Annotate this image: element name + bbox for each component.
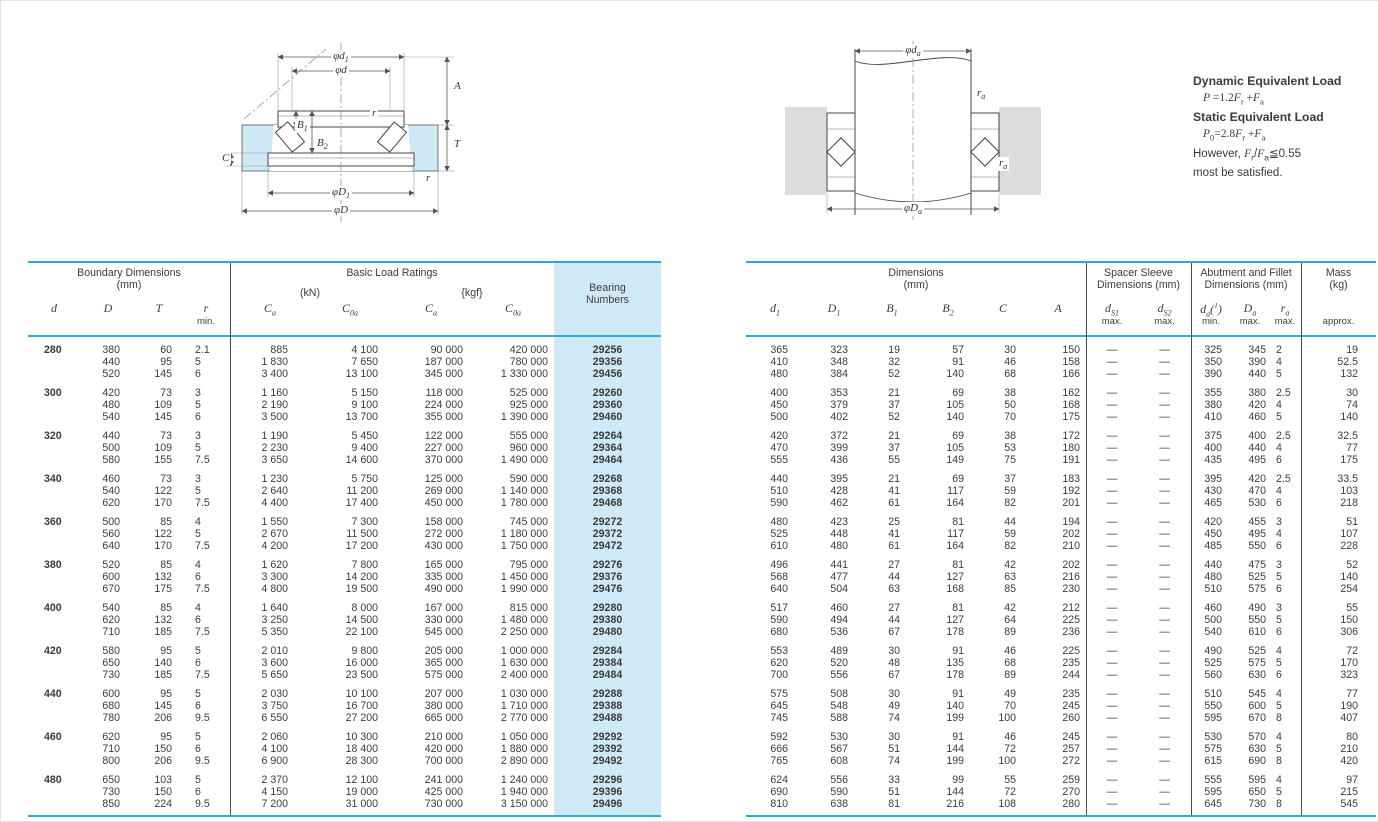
cell-D: 580 — [80, 638, 136, 657]
cell-Ca-kN: 4 150 — [230, 786, 310, 798]
cell-ra-max: 8 — [1269, 712, 1301, 724]
cell-bearing-number: 29388 — [554, 700, 661, 712]
cell-D: 620 — [80, 497, 136, 509]
cell-C0a-kN: 18 400 — [310, 743, 390, 755]
cell-C0a-kN: 12 100 — [310, 767, 390, 786]
cell-Da-max: 460 — [1231, 411, 1269, 423]
cell-r-min: 5 — [182, 442, 230, 454]
cell-Da-max: 550 — [1231, 540, 1269, 552]
cell-C: 46 — [976, 356, 1030, 368]
cell-D1: 348 — [804, 356, 864, 368]
cell-C0a-kN: 11 200 — [310, 485, 390, 497]
cell-Da-max: 495 — [1231, 528, 1269, 540]
cell-ra-max: 5 — [1269, 743, 1301, 755]
cell-D1: 423 — [804, 509, 864, 528]
cell-ds1: — — [1086, 681, 1138, 700]
table-row: 8502249.57 20031 000730 0003 150 0002949… — [28, 798, 661, 810]
cell-D: 640 — [80, 540, 136, 552]
cell-mass: 74 — [1301, 399, 1376, 411]
table-row: 440395216937183——3954202.533.5 — [746, 466, 1376, 485]
cell-Ca-kN: 1 230 — [230, 466, 310, 485]
cell-ds1: — — [1086, 626, 1138, 638]
cell-B1: 52 — [864, 368, 920, 380]
cell-d — [28, 657, 80, 669]
cell-C0a-kN: 16 000 — [310, 657, 390, 669]
cell-bearing-number: 29376 — [554, 571, 661, 583]
cell-C: 64 — [976, 614, 1030, 626]
cell-Ca-kN: 1 830 — [230, 356, 310, 368]
cell-B2: 127 — [920, 571, 976, 583]
cell-Ca-kN: 1 640 — [230, 595, 310, 614]
col-symbol-ds2: dS2 — [1138, 301, 1191, 317]
cell-C0a-kN: 13 700 — [310, 411, 390, 423]
cell-mass: 190 — [1301, 700, 1376, 712]
col-symbol-D: D — [80, 301, 136, 316]
cell-ra-max: 2.5 — [1269, 380, 1301, 399]
cell-Ca-kN: 4 800 — [230, 583, 310, 595]
cell-ra-max: 4 — [1269, 724, 1301, 743]
cell-D: 710 — [80, 626, 136, 638]
cell-Ca-kN: 1 160 — [230, 380, 310, 399]
cell-Da-max: 630 — [1231, 743, 1269, 755]
cell-T: 145 — [136, 411, 182, 423]
table-row: 575508309149235——510545477 — [746, 681, 1376, 700]
cell-D: 580 — [80, 454, 136, 466]
table-row: 496441278142202——440475352 — [746, 552, 1376, 571]
cell-T: 122 — [136, 485, 182, 497]
table-row: 4205809552 0109 800205 0001 000 00029284 — [28, 638, 661, 657]
cell-da-min: 510 — [1191, 583, 1231, 595]
boundary-dimensions-heading: Boundary Dimensions (mm) — [28, 268, 230, 291]
cell-Ca-kN: 3 500 — [230, 411, 310, 423]
cell-D1: 462 — [804, 497, 864, 509]
cell-bearing-number: 29380 — [554, 614, 661, 626]
cell-C0a-kN: 28 300 — [310, 755, 390, 767]
table-row: 6104806116482210——4855506228 — [746, 540, 1376, 552]
cell-C0a-kgf: 780 000 — [472, 356, 554, 368]
cell-Da-max: 470 — [1231, 485, 1269, 497]
cell-Ca-kgf: 207 000 — [390, 681, 472, 700]
table-row: 6905905114472270——5956505215 — [746, 786, 1376, 798]
cell-Ca-kgf: 118 000 — [390, 380, 472, 399]
cell-Ca-kgf: 227 000 — [390, 442, 472, 454]
table-row: 3204407331 1905 450122 000555 00029264 — [28, 423, 661, 442]
cell-B2: 57 — [920, 337, 976, 356]
cell-C0a-kN: 17 400 — [310, 497, 390, 509]
cell-A: 245 — [1030, 724, 1086, 743]
cell-bearing-number: 29468 — [554, 497, 661, 509]
table-row: 5104284111759192——4304704103 — [746, 485, 1376, 497]
cell-ds2: — — [1138, 755, 1191, 767]
cell-Da-max: 670 — [1231, 712, 1269, 724]
cell-r-min: 4 — [182, 509, 230, 528]
cell-B1: 63 — [864, 583, 920, 595]
cell-C0a-kgf: 815 000 — [472, 595, 554, 614]
cell-B2: 164 — [920, 540, 976, 552]
cell-d1: 765 — [746, 755, 804, 767]
cell-C0a-kgf: 1 180 000 — [472, 528, 554, 540]
mounted-bearing-diagram — [783, 37, 1043, 227]
boundary-dimensions-unit: (mm) — [117, 279, 142, 291]
cell-ds1: — — [1086, 669, 1138, 681]
cell-da-min: 575 — [1191, 743, 1231, 755]
cell-D1: 399 — [804, 442, 864, 454]
column-divider — [1301, 263, 1302, 815]
cell-B1: 27 — [864, 595, 920, 614]
cell-bearing-number: 29384 — [554, 657, 661, 669]
cell-d — [28, 528, 80, 540]
cell-ds1: — — [1086, 755, 1138, 767]
cell-A: 259 — [1030, 767, 1086, 786]
cell-C0a-kN: 11 500 — [310, 528, 390, 540]
dim-label-D1: φD1 — [330, 186, 352, 200]
dimensions-table: Dimensions (mm) Spacer Sleeve Dimensions… — [746, 261, 1376, 817]
cell-C0a-kN: 4 100 — [310, 337, 390, 356]
cell-B1: 21 — [864, 466, 920, 485]
load-note-line1: However, Fr/Fa≦0.55 — [1193, 146, 1378, 166]
cell-D: 680 — [80, 700, 136, 712]
table-row: 6405046316885230——5105756254 — [746, 583, 1376, 595]
col-symbol-ra: ra — [1269, 301, 1301, 317]
cell-r-min: 5 — [182, 399, 230, 411]
cell-C0a-kgf: 2 400 000 — [472, 669, 554, 681]
cell-ra-max: 4 — [1269, 442, 1301, 454]
cell-mass: 107 — [1301, 528, 1376, 540]
cell-r-min: 7.5 — [182, 626, 230, 638]
cell-bearing-number: 29460 — [554, 411, 661, 423]
cell-T: 145 — [136, 368, 182, 380]
cell-Da-max: 420 — [1231, 399, 1269, 411]
col-symbol-d: d — [28, 301, 80, 316]
cell-B1: 30 — [864, 681, 920, 700]
cell-Da-max: 730 — [1231, 798, 1269, 810]
cell-B1: 74 — [864, 755, 920, 767]
cell-A: 280 — [1030, 798, 1086, 810]
cell-ds2: — — [1138, 337, 1191, 356]
table-row: 4803845214068166——3904405132 — [746, 368, 1376, 380]
cell-C0a-kN: 22 100 — [310, 626, 390, 638]
cell-mass: 52 — [1301, 552, 1376, 571]
cell-B2: 81 — [920, 595, 976, 614]
cell-d — [28, 626, 80, 638]
cell-B1: 41 — [864, 485, 920, 497]
cell-da-min: 490 — [1191, 638, 1231, 657]
cell-r-min: 5 — [182, 528, 230, 540]
cell-B2: 91 — [920, 638, 976, 657]
col-symbol-ds1: dS1 — [1086, 301, 1138, 317]
cell-da-min: 420 — [1191, 509, 1231, 528]
cell-ra-max: 2.5 — [1269, 466, 1301, 485]
cell-d — [28, 614, 80, 626]
cell-ds2: — — [1138, 571, 1191, 583]
cell-A: 150 — [1030, 337, 1086, 356]
col-symbol-B1: B1 — [864, 301, 920, 317]
cell-d: 360 — [28, 509, 80, 528]
unit-kn-label: (kN) — [230, 288, 390, 300]
table-row: 50010952 2309 400227 000960 00029364 — [28, 442, 661, 454]
dim-label-r-top: r — [370, 107, 378, 119]
cell-A: 235 — [1030, 681, 1086, 700]
cell-ra-max: 3 — [1269, 552, 1301, 571]
cell-C: 42 — [976, 552, 1030, 571]
cell-d — [28, 583, 80, 595]
cell-bearing-number: 29364 — [554, 442, 661, 454]
cell-r-min: 7.5 — [182, 454, 230, 466]
cell-ra-max: 5 — [1269, 571, 1301, 583]
cell-B1: 33 — [864, 767, 920, 786]
cell-C0a-kgf: 590 000 — [472, 466, 554, 485]
cell-B2: 144 — [920, 786, 976, 798]
cell-bearing-number: 29296 — [554, 767, 661, 786]
cell-T: 170 — [136, 497, 182, 509]
cell-bearing-number: 29360 — [554, 399, 661, 411]
cell-D: 620 — [80, 614, 136, 626]
table-row: 7005566717889244——5606306323 — [746, 669, 1376, 681]
cell-da-min: 615 — [1191, 755, 1231, 767]
cell-mass: 228 — [1301, 540, 1376, 552]
cell-ra-max: 6 — [1269, 669, 1301, 681]
cell-Da-max: 380 — [1231, 380, 1269, 399]
cell-ds1: — — [1086, 724, 1138, 743]
cell-Ca-kN: 3 400 — [230, 368, 310, 380]
cell-r-min: 5 — [182, 638, 230, 657]
cell-A: 172 — [1030, 423, 1086, 442]
cell-bearing-number: 29472 — [554, 540, 661, 552]
cell-A: 210 — [1030, 540, 1086, 552]
cell-C0a-kgf: 1 390 000 — [472, 411, 554, 423]
cell-d1: 624 — [746, 767, 804, 786]
dimensions-unit: (mm) — [904, 279, 929, 291]
cell-Da-max: 600 — [1231, 700, 1269, 712]
cell-C0a-kgf: 1 940 000 — [472, 786, 554, 798]
cell-ds1: — — [1086, 454, 1138, 466]
cell-C0a-kgf: 555 000 — [472, 423, 554, 442]
cell-C0a-kN: 10 100 — [310, 681, 390, 700]
cell-ra-max: 5 — [1269, 700, 1301, 712]
cell-C0a-kN: 14 500 — [310, 614, 390, 626]
col-symbol-Ca-kgf: Ca — [390, 301, 472, 317]
cell-ra-max: 4 — [1269, 399, 1301, 411]
table-row: 56012252 67011 500272 0001 180 00029372 — [28, 528, 661, 540]
table-row: 7101857.55 35022 100545 0002 250 0002948… — [28, 626, 661, 638]
cell-C0a-kgf: 1 030 000 — [472, 681, 554, 700]
cell-D: 540 — [80, 485, 136, 497]
cell-da-min: 560 — [1191, 669, 1231, 681]
cell-ra-max: 2.5 — [1269, 423, 1301, 442]
cell-A: 162 — [1030, 380, 1086, 399]
cell-C0a-kN: 14 600 — [310, 454, 390, 466]
cell-C: 59 — [976, 528, 1030, 540]
cell-bearing-number: 29276 — [554, 552, 661, 571]
table-row: 76560874199100272——6156908420 — [746, 755, 1376, 767]
cell-d1: 645 — [746, 700, 804, 712]
cell-Ca-kN: 3 250 — [230, 614, 310, 626]
cell-Da-max: 400 — [1231, 423, 1269, 442]
cell-d: 440 — [28, 681, 80, 700]
dim-label-D: φD — [332, 204, 350, 216]
cell-mass: 55 — [1301, 595, 1376, 614]
table-row: 517460278142212——460490355 — [746, 595, 1376, 614]
cell-bearing-number: 29256 — [554, 337, 661, 356]
cell-da-min: 355 — [1191, 380, 1231, 399]
cell-B2: 178 — [920, 626, 976, 638]
table-row: 65014063 60016 000365 0001 630 00029384 — [28, 657, 661, 669]
cell-ds2: — — [1138, 786, 1191, 798]
cell-C: 42 — [976, 595, 1030, 614]
cell-da-min: 645 — [1191, 798, 1231, 810]
cell-ds2: — — [1138, 798, 1191, 810]
col-caption-da-min: min. — [1191, 316, 1231, 328]
cell-Ca-kN: 2 640 — [230, 485, 310, 497]
col-caption-r-min: min. — [182, 316, 230, 328]
cell-Ca-kgf: 167 000 — [390, 595, 472, 614]
cell-Ca-kN: 1 550 — [230, 509, 310, 528]
cell-ds2: — — [1138, 528, 1191, 540]
cell-ds1: — — [1086, 700, 1138, 712]
table-row: 420372216938172——3754002.532.5 — [746, 423, 1376, 442]
cell-d1: 745 — [746, 712, 804, 724]
cell-mass: 150 — [1301, 614, 1376, 626]
cell-d: 320 — [28, 423, 80, 442]
cell-r-min: 6 — [182, 614, 230, 626]
cell-ds1: — — [1086, 356, 1138, 368]
cell-Da-max: 650 — [1231, 786, 1269, 798]
table-row: 592530309146245——530570480 — [746, 724, 1376, 743]
cell-D: 780 — [80, 712, 136, 724]
cell-Ca-kgf: 370 000 — [390, 454, 472, 466]
cell-mass: 80 — [1301, 724, 1376, 743]
cell-B2: 140 — [920, 411, 976, 423]
cell-mass: 218 — [1301, 497, 1376, 509]
cell-ds2: — — [1138, 485, 1191, 497]
unit-kgf-label: {kgf} — [390, 288, 554, 300]
cell-Ca-kN: 2 010 — [230, 638, 310, 657]
cell-d1: 365 — [746, 337, 804, 356]
cell-d — [28, 743, 80, 755]
cell-r-min: 5 — [182, 485, 230, 497]
cell-d — [28, 454, 80, 466]
cell-bearing-number: 29372 — [554, 528, 661, 540]
cell-D1: 504 — [804, 583, 864, 595]
table-row: 3605008541 5507 300158 000745 00029272 — [28, 509, 661, 528]
table-row: 624556339955259——555595497 — [746, 767, 1376, 786]
cell-T: 132 — [136, 571, 182, 583]
basic-load-ratings-title: Basic Load Ratings — [230, 268, 554, 280]
cell-Ca-kgf: 90 000 — [390, 337, 472, 356]
cell-ds1: — — [1086, 712, 1138, 724]
cell-C0a-kN: 9 800 — [310, 638, 390, 657]
cell-T: 85 — [136, 595, 182, 614]
cell-C0a-kgf: 1 000 000 — [472, 638, 554, 657]
cell-mass: 77 — [1301, 442, 1376, 454]
cell-Ca-kN: 4 200 — [230, 540, 310, 552]
cell-T: 85 — [136, 509, 182, 528]
cell-C0a-kgf: 525 000 — [472, 380, 554, 399]
cell-C0a-kgf: 3 150 000 — [472, 798, 554, 810]
cell-Ca-kN: 2 230 — [230, 442, 310, 454]
cell-A: 225 — [1030, 614, 1086, 626]
cell-D1: 489 — [804, 638, 864, 657]
cell-B2: 164 — [920, 497, 976, 509]
cell-B2: 149 — [920, 454, 976, 466]
table-row: 4606209552 06010 300210 0001 050 0002929… — [28, 724, 661, 743]
cell-Da-max: 630 — [1231, 669, 1269, 681]
cell-Ca-kgf: 665 000 — [390, 712, 472, 724]
cell-C0a-kgf: 2 890 000 — [472, 755, 554, 767]
cell-B1: 44 — [864, 614, 920, 626]
cell-r-min: 6 — [182, 368, 230, 380]
cell-d: 280 — [28, 337, 80, 356]
abutment-fillet-title-line1: Abutment and Fillet — [1200, 267, 1291, 279]
cell-bearing-number: 29272 — [554, 509, 661, 528]
cell-D: 730 — [80, 786, 136, 798]
column-divider — [1086, 263, 1087, 815]
cell-bearing-number: 29484 — [554, 669, 661, 681]
cell-d1: 590 — [746, 497, 804, 509]
cell-D1: 353 — [804, 380, 864, 399]
cell-Da-max: 455 — [1231, 509, 1269, 528]
equivalent-load-notes: Dynamic Equivalent Load P =1.2Fr +Fa Sta… — [1193, 73, 1378, 182]
cell-A: 212 — [1030, 595, 1086, 614]
table-row: 7301857.55 65023 500575 0002 400 0002948… — [28, 669, 661, 681]
cell-Ca-kgf: 205 000 — [390, 638, 472, 657]
cell-r-min: 6 — [182, 786, 230, 798]
cell-da-min: 440 — [1191, 552, 1231, 571]
cell-B2: 117 — [920, 528, 976, 540]
cell-Ca-kgf: 430 000 — [390, 540, 472, 552]
cell-C0a-kN: 27 200 — [310, 712, 390, 724]
cell-bearing-number: 29264 — [554, 423, 661, 442]
cell-A: 194 — [1030, 509, 1086, 528]
cell-Da-max: 550 — [1231, 614, 1269, 626]
cell-Ca-kgf: 380 000 — [390, 700, 472, 712]
cell-T: 109 — [136, 442, 182, 454]
cell-B1: 32 — [864, 356, 920, 368]
cell-d: 300 — [28, 380, 80, 399]
cell-d: 400 — [28, 595, 80, 614]
cell-mass: 103 — [1301, 485, 1376, 497]
cell-C: 70 — [976, 411, 1030, 423]
cell-B1: 41 — [864, 528, 920, 540]
cell-ds2: — — [1138, 411, 1191, 423]
cell-mass: 210 — [1301, 743, 1376, 755]
table-row: 5801557.53 65014 600370 0001 490 0002946… — [28, 454, 661, 466]
cell-mass: 72 — [1301, 638, 1376, 657]
cell-r-min: 5 — [182, 767, 230, 786]
cell-mass: 254 — [1301, 583, 1376, 595]
cell-ds1: — — [1086, 540, 1138, 552]
cell-da-min: 435 — [1191, 454, 1231, 466]
cell-mass: 420 — [1301, 755, 1376, 767]
cell-da-min: 450 — [1191, 528, 1231, 540]
cell-B2: 91 — [920, 724, 976, 743]
cell-C0a-kN: 5 450 — [310, 423, 390, 442]
cell-Ca-kgf: 122 000 — [390, 423, 472, 442]
cell-d1: 410 — [746, 356, 804, 368]
table-row: 4703993710553180——400440477 — [746, 442, 1376, 454]
col-symbol-Da: Da — [1231, 301, 1269, 317]
cell-D: 560 — [80, 528, 136, 540]
cell-ds2: — — [1138, 626, 1191, 638]
cell-C: 75 — [976, 454, 1030, 466]
cell-da-min: 555 — [1191, 767, 1231, 786]
bearing-numbers-title-line2: Numbers — [586, 294, 629, 306]
cell-r-min: 7.5 — [182, 583, 230, 595]
cell-C0a-kgf: 1 880 000 — [472, 743, 554, 755]
cell-Ca-kgf: 425 000 — [390, 786, 472, 798]
cell-C0a-kgf: 1 710 000 — [472, 700, 554, 712]
cell-C0a-kN: 23 500 — [310, 669, 390, 681]
